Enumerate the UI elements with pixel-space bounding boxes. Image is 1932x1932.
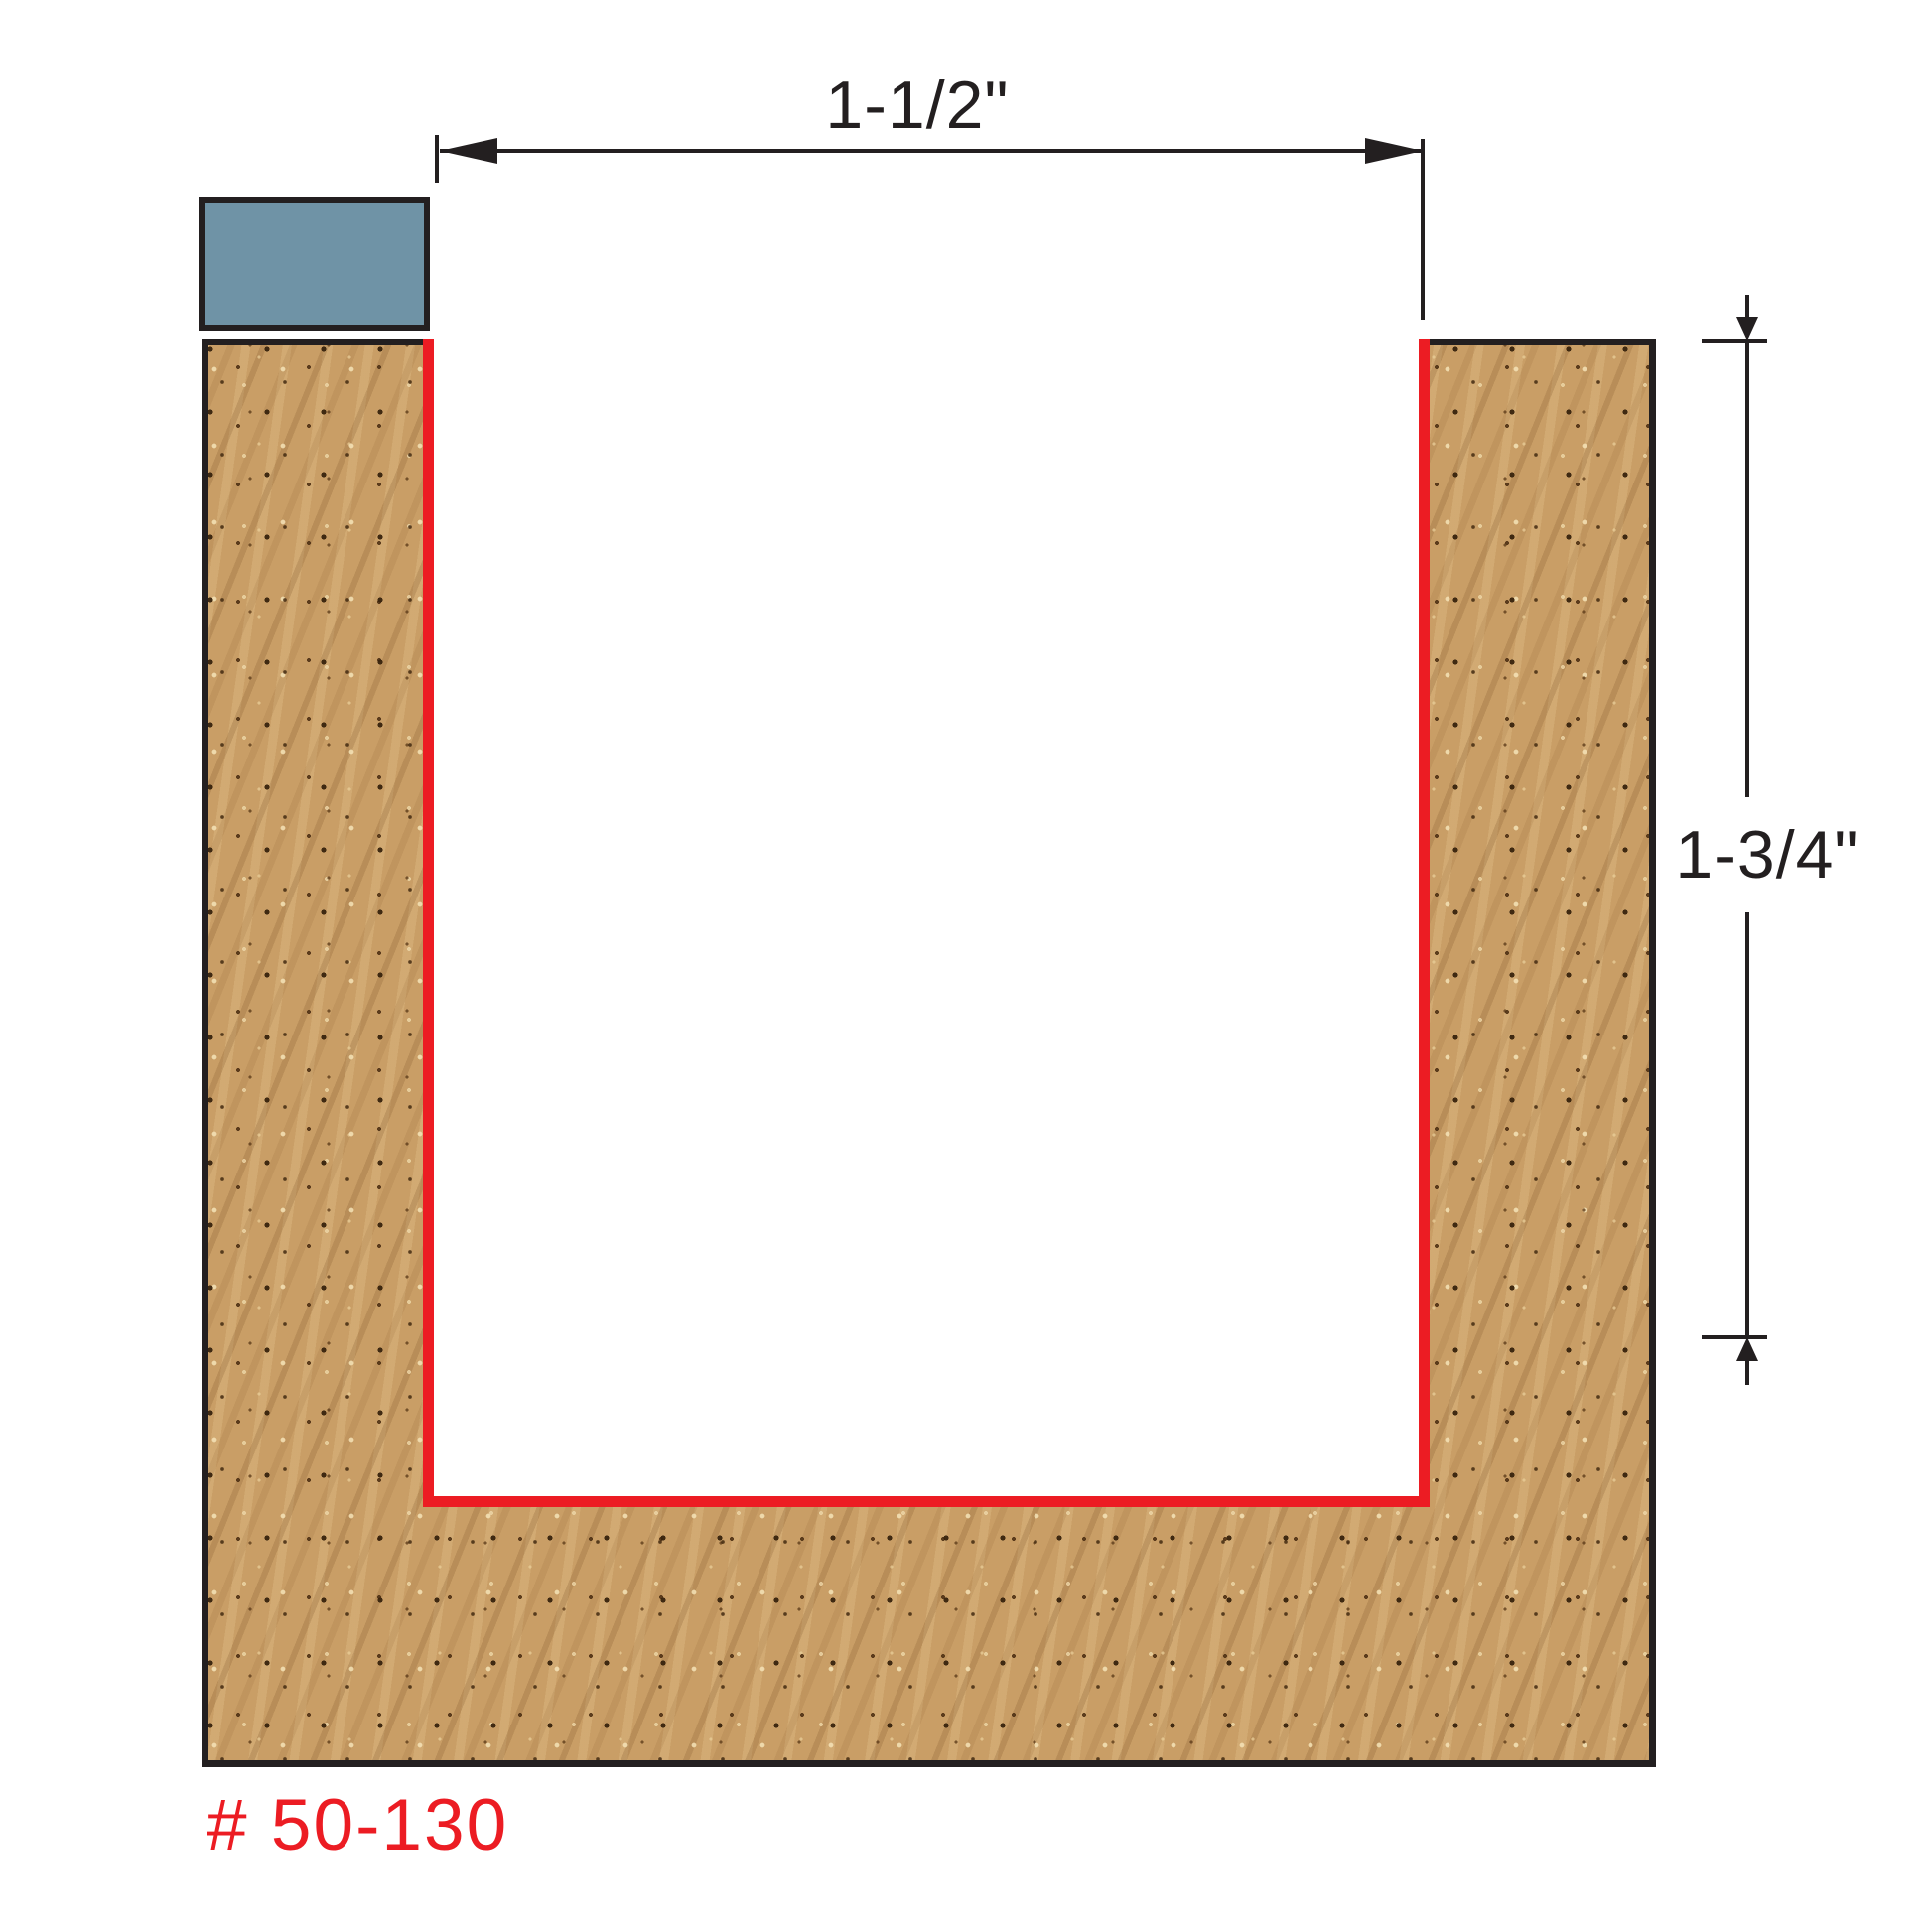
part-number-label: # 50-130 [207,1789,508,1862]
arrow-up-icon [1736,1337,1758,1361]
cutter-blue-block [199,197,430,331]
wood-border-top-left [202,339,434,345]
groove-outline-bottom [423,1496,1430,1507]
width-dimension-line [440,149,1423,153]
extension-line-left [435,135,439,183]
groove-outline-left [423,339,434,1507]
diagram-canvas: 1-1/2" 1-3/4" # 50-130 [0,0,1932,1932]
wood-border-right [1649,339,1656,1767]
wood-cross-section [202,339,1656,1767]
arrow-right-icon [1365,138,1423,164]
depth-dimension-label: 1-3/4" [1668,821,1866,889]
groove-outline-right [1419,339,1430,1507]
depth-dimension-line-lower [1745,912,1749,1335]
wood-border-top-right [1419,339,1656,345]
depth-dimension-line-upper [1745,343,1749,797]
arrow-left-icon [440,138,497,164]
wood-border-bottom [202,1760,1656,1767]
depth-arrow-bottom-tail [1745,1359,1749,1385]
width-dimension-label: 1-1/2" [719,71,1116,139]
wood-border-left [202,339,208,1767]
extension-line-right [1421,139,1425,320]
arrow-down-icon [1736,317,1758,341]
